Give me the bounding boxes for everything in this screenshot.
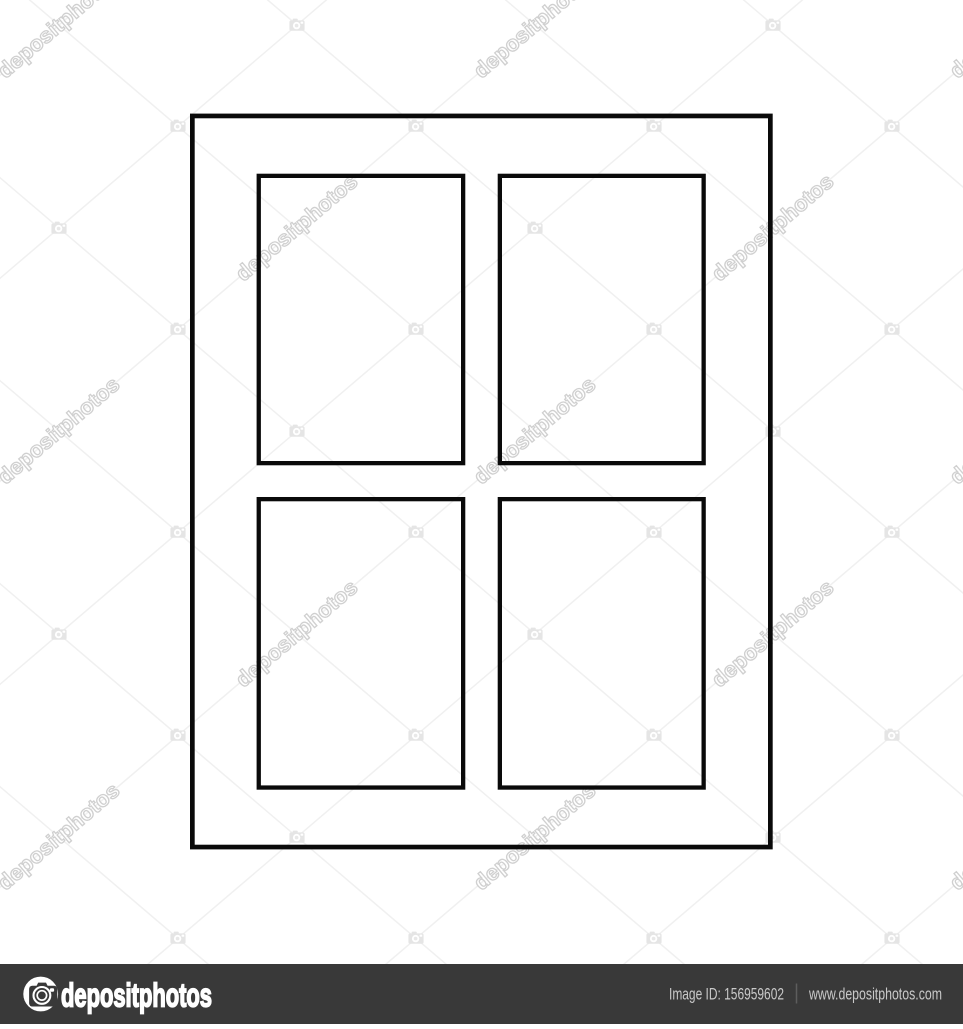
- svg-text:depositphotos: depositphotos: [61, 978, 212, 1014]
- svg-text:www.depositphotos.com: www.depositphotos.com: [808, 985, 942, 1004]
- svg-text:Image ID: 156959602: Image ID: 156959602: [669, 985, 784, 1004]
